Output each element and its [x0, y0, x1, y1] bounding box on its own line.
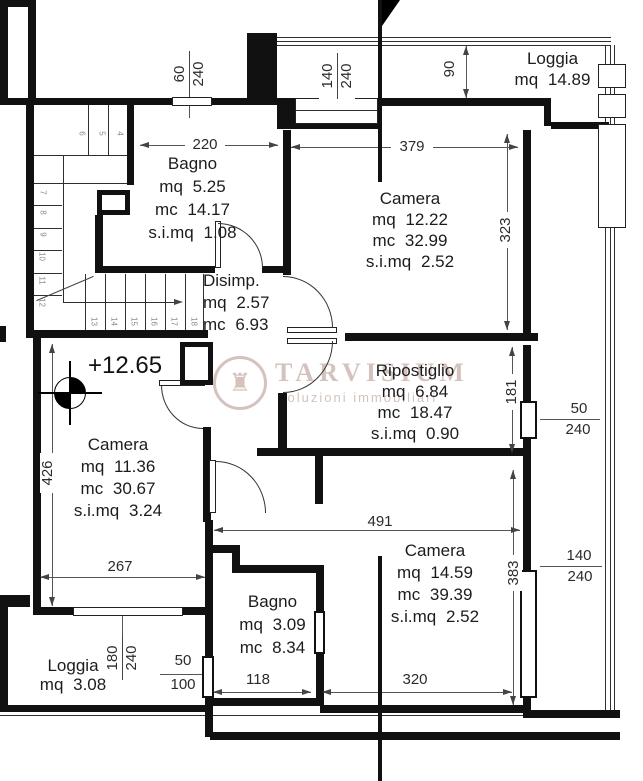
room-mc: mc 30.67 — [48, 478, 188, 500]
room-mc: mc 32.99 — [330, 230, 490, 251]
dim-line — [214, 530, 520, 531]
railing-pilaster — [598, 124, 626, 228]
room-simq: s.i.mq 0.90 — [335, 423, 495, 444]
dim-arrow — [49, 344, 55, 353]
wall-segment — [544, 104, 551, 126]
wall-segment — [320, 705, 528, 713]
stair-step-number: 4 — [116, 128, 125, 140]
room-mc: mc 8.34 — [215, 636, 330, 659]
room-mq: mq 6.84 — [335, 381, 495, 402]
door-arc — [216, 461, 266, 513]
stair-line — [108, 105, 109, 155]
dim-denominator: 240 — [123, 636, 141, 680]
dimension-label: 90 — [442, 55, 458, 83]
dim-numerator: 60 — [171, 51, 190, 97]
dim-arrow — [503, 689, 512, 695]
room-mc: mc 18.47 — [335, 402, 495, 423]
railing-pilaster — [598, 94, 626, 118]
dim-arrow — [509, 144, 518, 150]
wall-segment — [278, 393, 287, 453]
room-name: Loggia — [495, 48, 610, 69]
wall-segment — [283, 130, 291, 275]
dim-arrow — [302, 689, 311, 695]
dim-arrow — [140, 142, 149, 148]
room-label-loggia-tr: Loggia mq 14.89 — [495, 48, 610, 90]
stair-step-number: 14 — [110, 316, 119, 328]
wall-segment — [0, 705, 213, 712]
stair-line — [34, 155, 127, 156]
wall-segment — [205, 698, 324, 706]
window-60x240 — [172, 97, 212, 106]
stair-step-number: 16 — [150, 316, 159, 328]
shaft-box — [97, 190, 130, 215]
dim-arrow — [510, 696, 516, 705]
stair-line — [88, 105, 89, 155]
wall-segment — [0, 595, 8, 712]
room-simq: s.i.mq 3.24 — [48, 500, 188, 522]
wall-segment — [315, 456, 323, 504]
wall-segment — [95, 215, 103, 273]
wall-segment — [212, 98, 250, 105]
room-name: Ripostiglio — [335, 360, 495, 381]
room-label-disimp: Disimp. mq 2.57 mc 6.93 — [203, 270, 288, 336]
stair-step-number: 8 — [39, 207, 48, 219]
room-name: Camera — [48, 434, 188, 456]
dim-fraction-bar — [160, 674, 206, 675]
railing-line — [277, 37, 611, 38]
room-name: Disimp. — [203, 270, 288, 292]
dimension-label: 118 — [240, 672, 276, 688]
dim-arrow — [213, 689, 222, 695]
section-marker-flag — [382, 0, 400, 26]
dim-arrow — [196, 574, 205, 580]
dim-line — [322, 692, 512, 693]
dim-arrow — [40, 574, 49, 580]
dim-arrow — [214, 527, 223, 533]
wall-segment — [523, 345, 531, 403]
window-50x240 — [520, 401, 537, 439]
dim-denominator: 240 — [190, 51, 208, 97]
dim-numerator: 50 — [166, 653, 200, 669]
dimension-label: 491 — [358, 514, 402, 530]
dim-line — [40, 577, 205, 578]
dim-arrow — [509, 444, 515, 453]
dim-denominator: 240 — [560, 569, 600, 585]
window-dim-60-240: 60 240 — [171, 51, 207, 97]
dim-numerator: 140 — [558, 548, 600, 564]
door-arc — [283, 276, 333, 328]
window-140x240-right — [520, 570, 537, 698]
room-label-bagno-b: Bagno mq 3.09 mc 8.34 — [215, 590, 330, 659]
stair-line — [34, 183, 127, 184]
room-simq: s.i.mq 2.52 — [360, 606, 510, 628]
room-label-bagno-tl: Bagno mq 5.25 mc 14.17 s.i.mq 1.08 — [130, 152, 255, 244]
room-name: Loggia — [23, 656, 123, 675]
wall-segment — [210, 732, 620, 740]
wall-segment — [0, 326, 6, 342]
stair-direction-arrow — [174, 299, 183, 305]
wall-segment — [95, 266, 215, 273]
wall-segment — [523, 456, 531, 570]
dim-arrow — [504, 321, 510, 330]
dim-arrow — [322, 689, 331, 695]
room-mc: mc 6.93 — [203, 314, 288, 336]
room-name: Bagno — [130, 152, 255, 175]
room-simq: s.i.mq 1.08 — [130, 221, 255, 244]
room-label-camera-br: Camera mq 14.59 mc 39.39 s.i.mq 2.52 — [360, 540, 510, 628]
dim-denominator: 100 — [163, 677, 203, 693]
room-label-camera-bl: Camera mq 11.36 mc 30.67 s.i.mq 3.24 — [48, 434, 188, 522]
stair-step-number: 6 — [78, 128, 87, 140]
stair-direction-line — [63, 302, 176, 303]
window-line — [296, 110, 377, 111]
stair-step-number: 10 — [38, 251, 47, 263]
dim-numerator: 50 — [562, 401, 596, 417]
dim-fraction-bar — [540, 566, 602, 567]
dim-fraction-bar — [540, 419, 600, 420]
room-label-ripostiglio: Ripostiglio mq 6.84 mc 18.47 s.i.mq 0.90 — [335, 360, 495, 444]
room-name: Bagno — [215, 590, 330, 613]
room-mq: mq 14.89 — [495, 69, 610, 90]
stair-step-number: 18 — [190, 316, 199, 328]
room-mq: mq 3.08 — [23, 675, 123, 694]
wall-segment — [28, 0, 36, 105]
wall-segment — [26, 98, 34, 338]
room-mc: mc 39.39 — [360, 584, 510, 606]
room-mq: mq 3.09 — [215, 613, 330, 636]
room-name: Camera — [360, 540, 510, 562]
wall-segment — [378, 98, 551, 106]
dim-arrow — [509, 347, 515, 356]
wall-segment — [0, 0, 8, 105]
section-line-top — [378, 0, 382, 182]
stair-step-number: 7 — [39, 187, 48, 199]
room-mq: mq 5.25 — [130, 175, 255, 198]
room-label-camera-tr: Camera mq 12.22 mc 32.99 s.i.mq 2.52 — [330, 188, 490, 272]
wall-segment — [523, 130, 531, 333]
stair-step-number: 9 — [39, 229, 48, 241]
room-mc: mc 14.17 — [130, 198, 255, 221]
stair-step-number: 17 — [170, 316, 179, 328]
door-arc — [161, 385, 203, 429]
wall-segment — [33, 607, 73, 615]
wall-segment — [205, 520, 213, 658]
dim-line — [213, 692, 311, 693]
dimension-label: 220 — [185, 137, 225, 153]
wall-segment — [232, 565, 324, 573]
stair-step-number: 13 — [90, 316, 99, 328]
dim-arrow — [291, 144, 300, 150]
door-leaf — [209, 460, 216, 513]
railing-line — [277, 41, 611, 42]
dim-arrow — [463, 89, 469, 98]
stair-line — [63, 155, 64, 302]
stair-step-number: 11 — [38, 275, 47, 287]
dimension-label: 320 — [395, 672, 435, 688]
stair-step-number: 15 — [130, 316, 139, 328]
wall-segment — [0, 0, 36, 7]
dim-arrow — [504, 134, 510, 143]
wall-segment — [345, 333, 538, 341]
dimension-label: 181 — [504, 374, 520, 410]
room-simq: s.i.mq 2.52 — [330, 251, 490, 272]
wall-segment — [257, 448, 531, 456]
window-dim-140-240-top: 140 240 — [319, 53, 355, 99]
room-mq: mq 12.22 — [330, 209, 490, 230]
dim-numerator: 140 — [319, 53, 338, 99]
wall-segment — [528, 710, 620, 718]
dim-denominator: 240 — [338, 53, 356, 99]
dim-arrow — [49, 597, 55, 606]
room-mq: mq 2.57 — [203, 292, 288, 314]
stair-line — [185, 274, 186, 330]
dimension-label: 323 — [498, 212, 514, 248]
dim-arrow — [269, 142, 278, 148]
castle-logo-icon: ♜ — [213, 356, 267, 410]
railing-line — [277, 45, 611, 46]
wall-segment — [247, 33, 277, 105]
wall-segment — [183, 607, 208, 615]
room-name: Camera — [330, 188, 490, 209]
dim-arrow — [510, 470, 516, 479]
window-180x240 — [73, 607, 183, 616]
benchmark-cross-v — [69, 361, 71, 425]
floor-plan: ♜ TARVISIUM soluzioni immobiliari — [0, 0, 643, 781]
dim-arrow — [511, 527, 520, 533]
window-140x240-top — [295, 98, 378, 124]
dim-arrow — [463, 46, 469, 55]
wall-segment — [26, 330, 208, 338]
dim-denominator: 240 — [558, 422, 598, 438]
room-label-loggia-bl: Loggia mq 3.08 — [23, 656, 123, 694]
room-mq: mq 14.59 — [360, 562, 510, 584]
dimension-label: 379 — [391, 139, 433, 155]
dimension-label: 267 — [100, 559, 140, 575]
closet-box — [180, 342, 213, 385]
stair-step-number: 5 — [98, 128, 107, 140]
room-mq: mq 11.36 — [48, 456, 188, 478]
level-marker: +12.65 — [88, 352, 162, 380]
stair-step-number: 12 — [38, 297, 47, 309]
